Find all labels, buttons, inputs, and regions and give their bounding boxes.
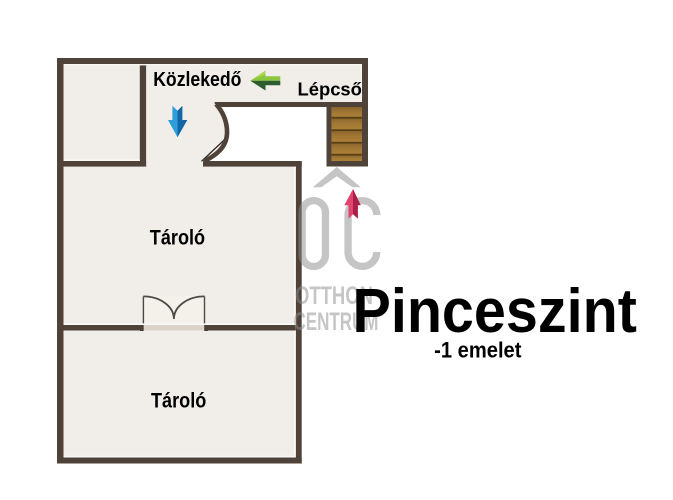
svg-text:Pinceszint: Pinceszint <box>353 276 637 346</box>
svg-text:-1 emelet: -1 emelet <box>434 339 521 363</box>
svg-text:Tároló: Tároló <box>151 389 206 413</box>
svg-text:Közlekedő: Közlekedő <box>153 68 241 90</box>
svg-text:Tároló: Tároló <box>150 226 205 250</box>
svg-text:Lépcső: Lépcső <box>298 78 362 99</box>
